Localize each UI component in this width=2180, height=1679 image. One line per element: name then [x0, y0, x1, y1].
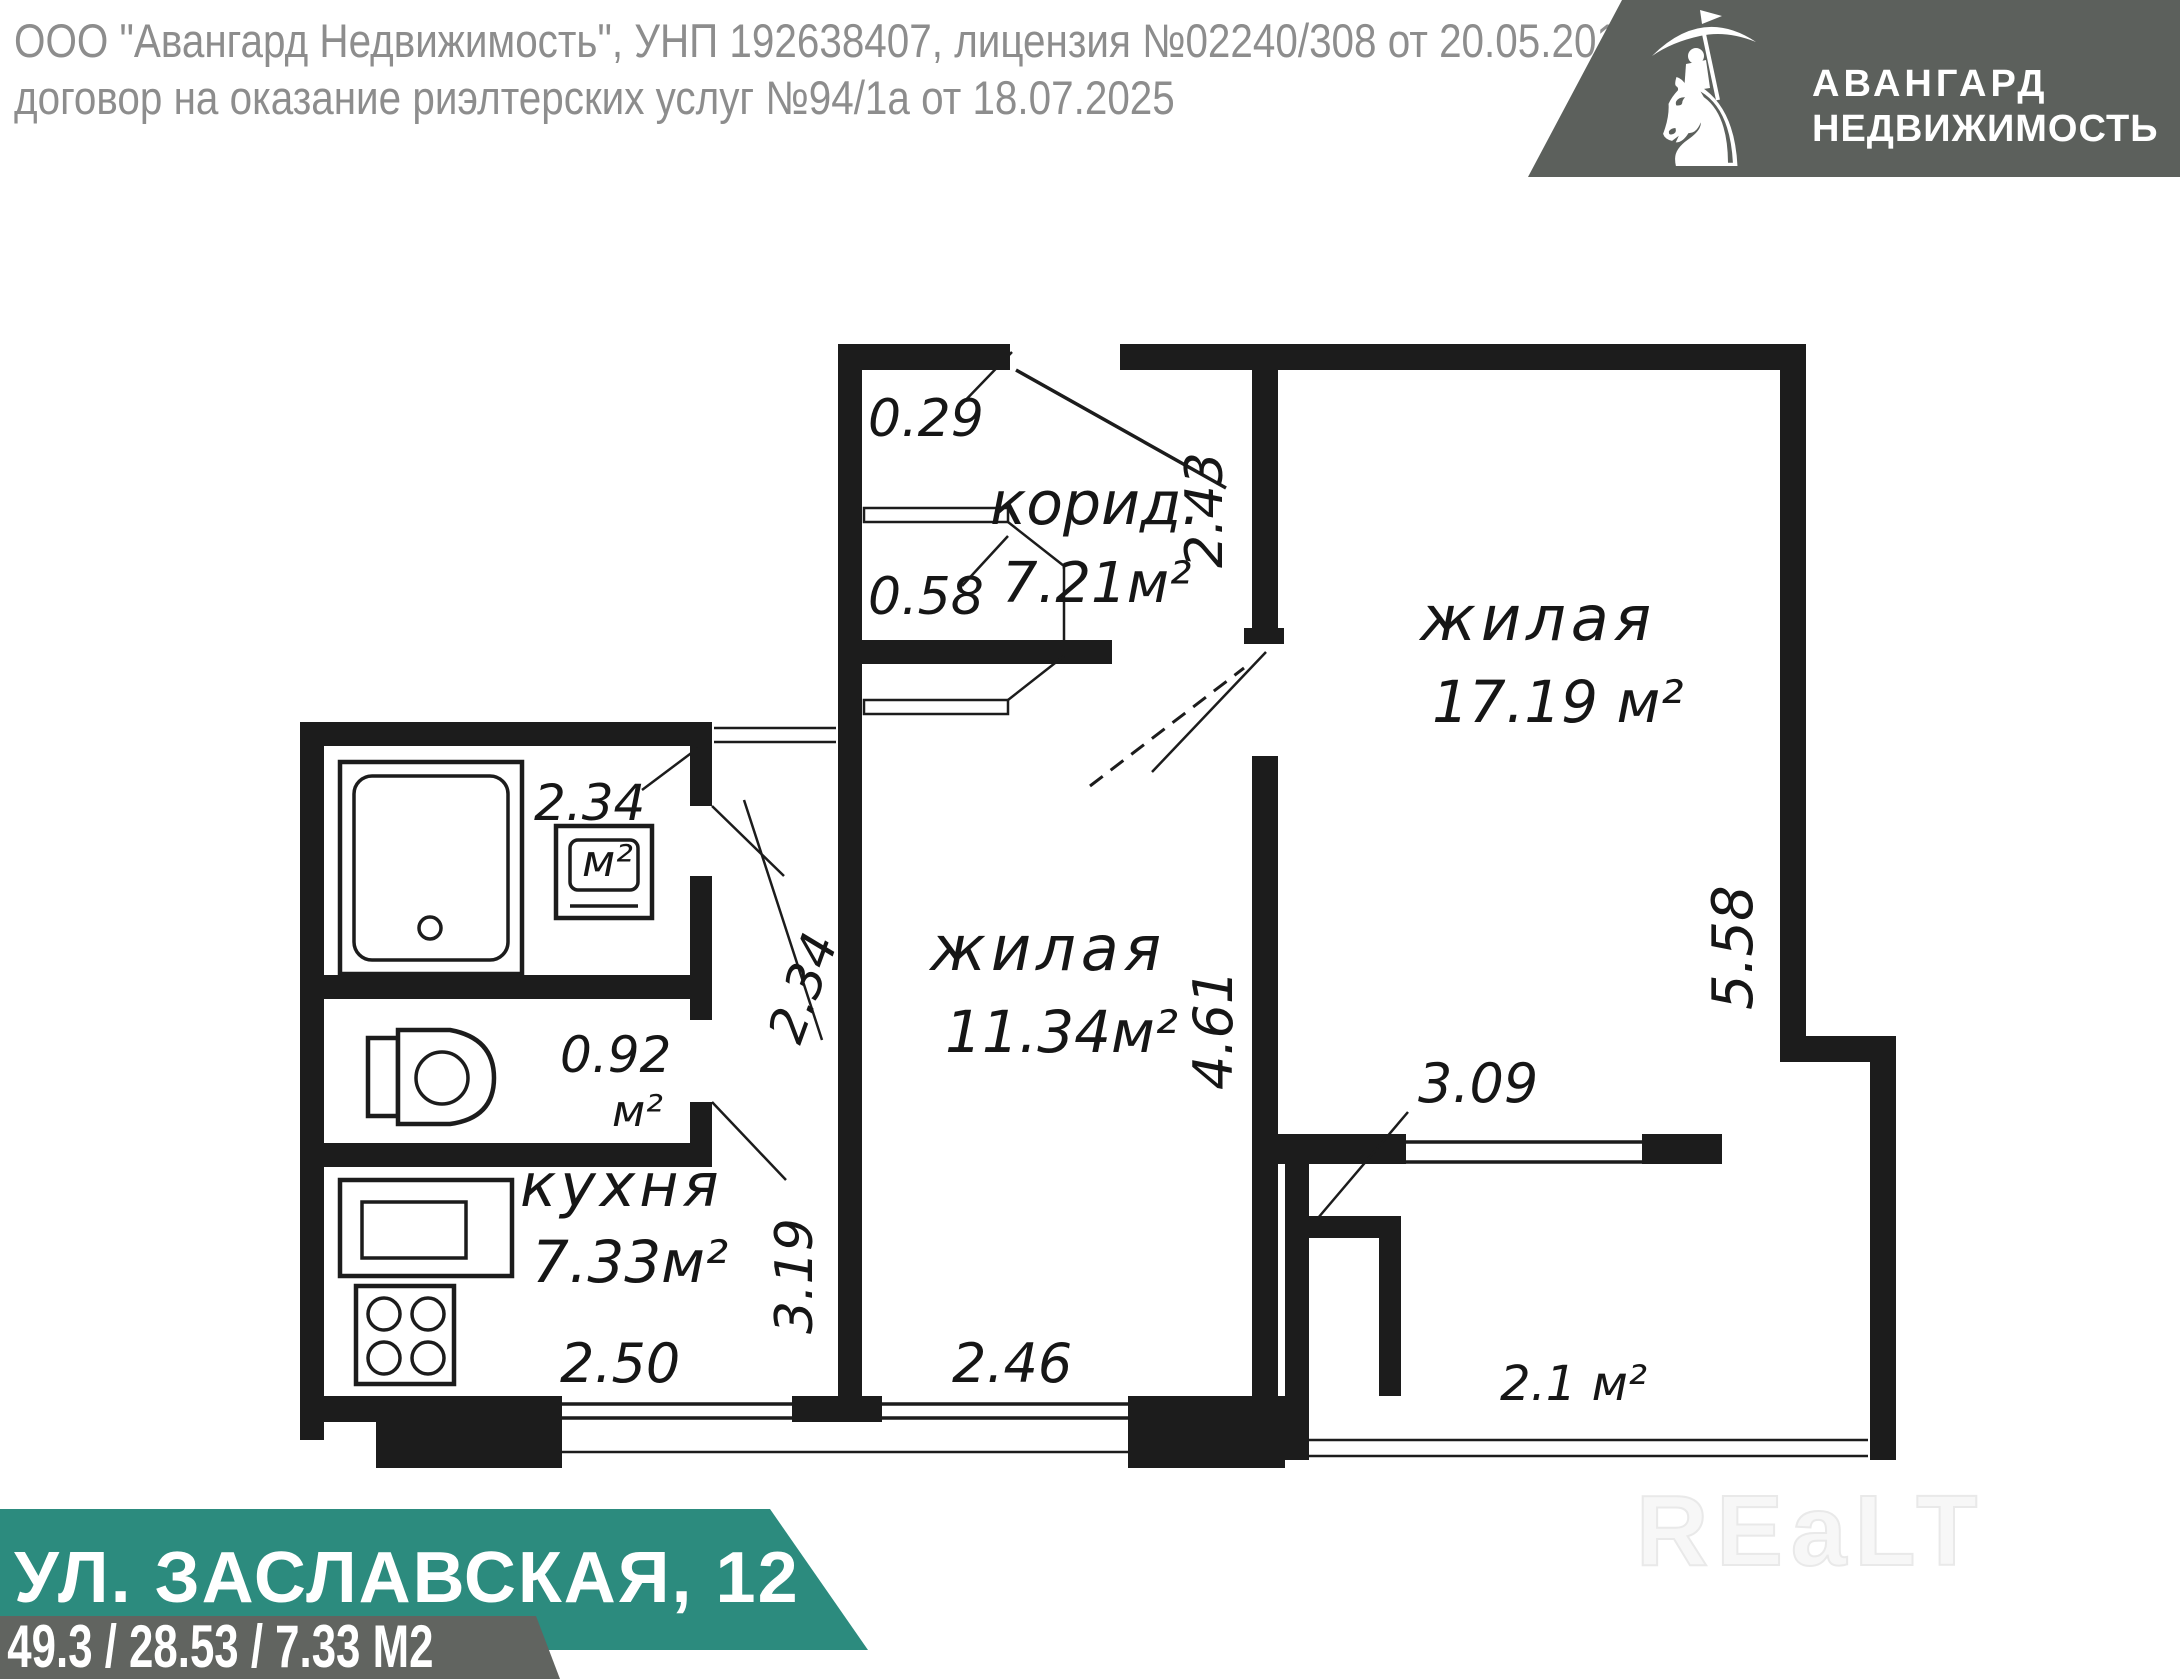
living1-area: 17.19 м² [1432, 668, 1683, 736]
balcony-area: 2.1 м² [1500, 1356, 1647, 1412]
living2-door-leaf [1090, 668, 1244, 786]
living2-area: 11.34м² [945, 998, 1178, 1066]
wc-door-leaf [712, 1102, 786, 1180]
areas-banner: 49.3 / 28.53 / 7.33 М2 [0, 1616, 560, 1679]
wc-area: 0.92 [560, 1026, 671, 1084]
kitchen-name: кухня [520, 1151, 723, 1221]
floor-plan: корид. 7.21м² жилая 17.19 м² жилая 11.34… [0, 0, 2180, 1679]
bath-door-leaf [712, 806, 784, 876]
corridor-name: корид. [990, 469, 1201, 539]
corridor-area: 7.21м² [1002, 551, 1191, 616]
areas-text: 49.3 / 28.53 / 7.33 М2 [0, 1616, 409, 1677]
dim-entry-closet: 0.58 [868, 567, 984, 627]
bath-unit: м² [582, 836, 633, 887]
dim-hall-depth: 2.34 [757, 926, 850, 1050]
dim-entry-niche: 0.29 [868, 389, 984, 449]
wc-unit: м² [612, 1086, 663, 1137]
bath-area: 2.34 [534, 774, 645, 832]
toilet [368, 1030, 494, 1124]
living1-name: жилая [1418, 582, 1656, 655]
stove [356, 1286, 454, 1384]
dim-living1-width: 3.09 [1418, 1052, 1538, 1115]
dim-living2-height: 4.61 [1182, 970, 1245, 1090]
flyer-canvas: ООО "Авангард Недвижимость", УНП 1926384… [0, 0, 2180, 1679]
dim-living2-width: 2.46 [952, 1332, 1072, 1395]
living2-name: жилая [928, 912, 1166, 985]
bathtub [340, 762, 522, 974]
dim-kitchen-width: 2.50 [560, 1332, 680, 1395]
dim-kitchen-height: 3.19 [765, 1218, 825, 1334]
dim-living1-height: 5.58 [1701, 885, 1766, 1010]
dim-living1-top: 2.43 [1175, 452, 1235, 568]
kitchen-sink-counter [340, 1180, 512, 1276]
realt-watermark: REaLT [1636, 1474, 1985, 1589]
living1-door-leaf [1152, 652, 1266, 772]
kitchen-area: 7.33м² [532, 1228, 728, 1296]
